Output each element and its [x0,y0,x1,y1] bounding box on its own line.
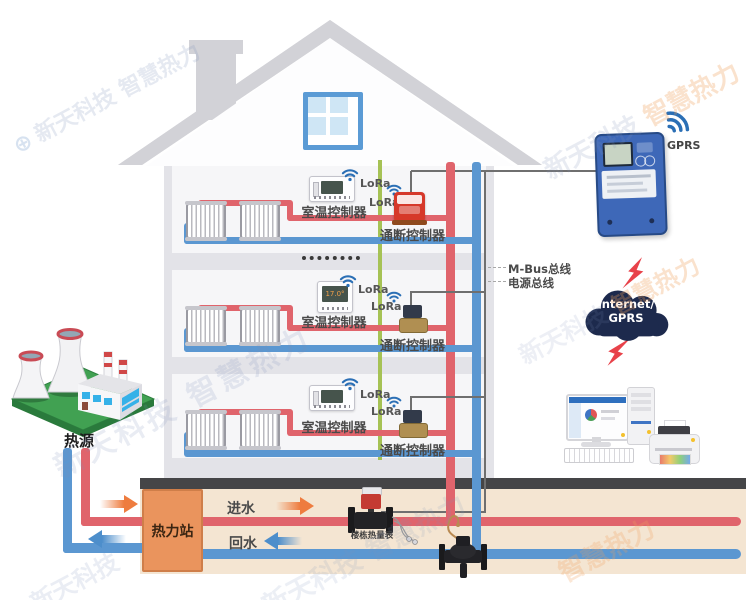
lora-label: LoRa [371,300,401,313]
cloud-line-1: Internet/ [593,297,659,311]
lora-signal-icon [340,375,360,392]
gprs-network-label: GPRS [667,139,700,152]
floor-3: 室温控制器 LoRa LoRa 通断控制器 [172,374,486,462]
floor-2: 17.0° 室温控制器 LoRa LoRa 通断控制器 [172,270,486,360]
mbus-leader-line [488,267,506,268]
lora-signal-icon [340,166,360,183]
motor-valve-body [399,318,428,333]
lora-signal-icon [338,272,358,289]
thermostat-label: 室温控制器 [299,417,369,436]
flow-arrow-left-icon [88,530,126,548]
supply-arrow-icon [276,497,314,515]
valve-control-wire [410,171,412,193]
radiator [240,412,280,448]
source-return-pipe-vertical [63,448,72,553]
more-floors-dots [302,256,360,260]
lora-label: LoRa [371,405,401,418]
heat-source-plant-illustration [8,316,158,438]
heat-meter-label: 楼栋热量表 [340,529,404,541]
source-supply-pipe-vertical [81,448,90,526]
thermostat-display: 17.0° [325,290,344,298]
radiator [186,203,226,239]
valve-label: 通断控制器 [380,440,440,459]
flow-arrow-right-icon [100,495,138,513]
radiator [186,308,226,344]
substation-label: 热力站 [152,521,194,541]
return-water-label: 回水 [229,533,257,553]
radiator [240,308,280,344]
heating-system-diagram: 热力站 进水 回水 热源 [0,0,751,600]
lora-label: LoRa [358,283,388,296]
valve-control-wire [410,396,412,411]
power-bus-label: 电源总线 [508,275,554,291]
valve-label: 通断控制器 [380,225,440,244]
printer [649,428,698,468]
thermostat-label: 室温控制器 [299,312,369,331]
floor-1: 室温控制器 LoRa LoRa 通断控制器 [172,166,486,256]
keyboard [564,448,634,463]
valve-bus-wire [410,291,486,293]
radiator [186,412,226,448]
thermostat-label: 室温控制器 [299,202,369,221]
cloud-line-2: GPRS [593,311,659,325]
supply-water-label: 进水 [227,498,255,518]
onoff-controller-device [394,192,425,222]
source-supply-pipe-horizontal [81,517,151,526]
motor-valve-actuator [403,410,422,423]
radiator [240,203,280,239]
substation-box: 热力站 [142,489,203,572]
power-leader-line [488,281,506,282]
valve-label: 通断控制器 [380,335,440,354]
underground-road-strip [140,478,746,489]
balancing-valve [436,498,490,584]
gprs-concentrator-device [594,132,668,237]
heat-source-label: 热源 [44,430,114,451]
motor-valve-actuator [403,305,422,318]
monitor-base [581,442,611,447]
cloud-caption: Internet/ GPRS [593,297,659,325]
valve-bus-wire [410,396,486,398]
return-arrow-icon [264,532,302,550]
house-window [303,92,363,150]
motor-valve-body [399,423,428,438]
monitor [566,394,629,441]
